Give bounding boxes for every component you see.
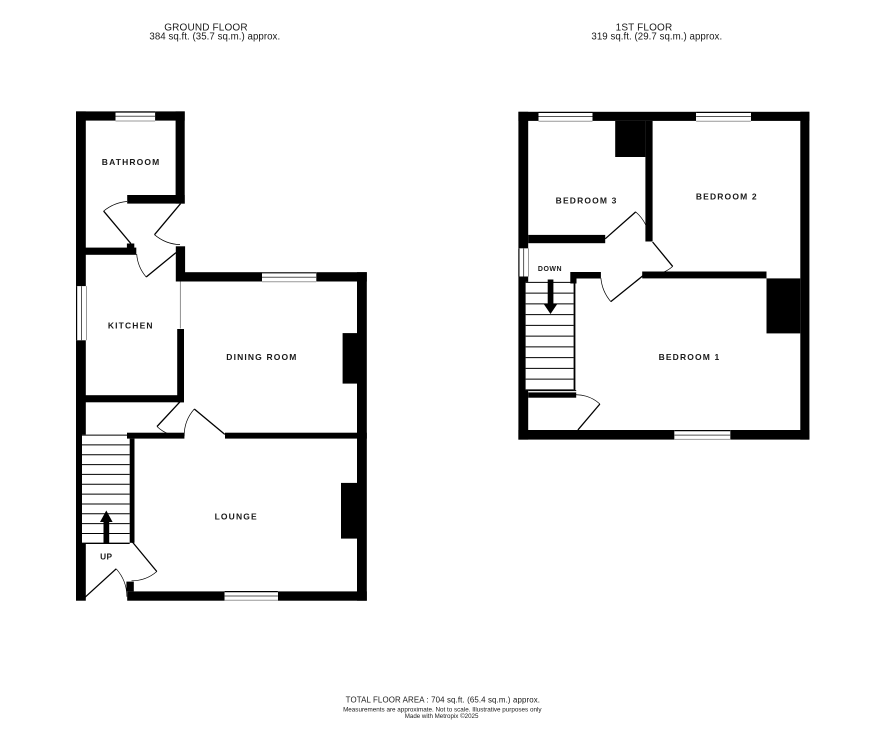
svg-text:384 sq.ft. (35.7 sq.m.) approx: 384 sq.ft. (35.7 sq.m.) approx. (149, 32, 280, 43)
svg-text:LOUNGE: LOUNGE (215, 512, 258, 522)
svg-text:BEDROOM 2: BEDROOM 2 (696, 191, 758, 201)
svg-text:DOWN: DOWN (538, 266, 562, 273)
svg-text:DINING ROOM: DINING ROOM (226, 352, 297, 362)
svg-text:BEDROOM 3: BEDROOM 3 (556, 196, 618, 206)
svg-text:BEDROOM 1: BEDROOM 1 (659, 352, 721, 362)
svg-text:UP: UP (100, 551, 112, 561)
svg-text:BATHROOM: BATHROOM (102, 157, 161, 167)
svg-text:KITCHEN: KITCHEN (108, 321, 154, 331)
svg-text:TOTAL FLOOR AREA : 704 sq.ft.: TOTAL FLOOR AREA : 704 sq.ft. (65.4 sq.m… (346, 695, 540, 704)
svg-text:319 sq.ft. (29.7 sq.m.) approx: 319 sq.ft. (29.7 sq.m.) approx. (591, 32, 722, 43)
svg-text:Made with Metropix ©2025: Made with Metropix ©2025 (405, 713, 479, 720)
